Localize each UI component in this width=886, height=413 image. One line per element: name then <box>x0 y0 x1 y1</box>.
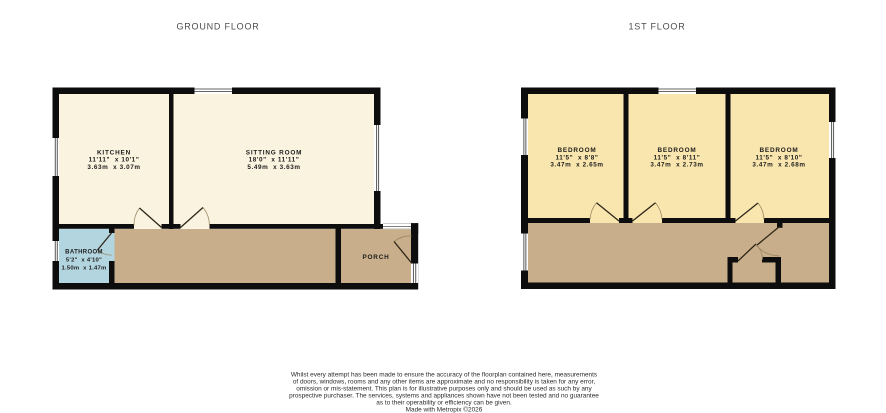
svg-text:BEDROOM: BEDROOM <box>760 147 799 154</box>
svg-text:BEDROOM: BEDROOM <box>558 147 597 154</box>
svg-text:omission or mis-statement. Thi: omission or mis-statement. This plan is … <box>296 385 592 392</box>
svg-text:18'0" x 11'11": 18'0" x 11'11" <box>249 157 300 164</box>
svg-text:Made with Metropix ©2026: Made with Metropix ©2026 <box>406 405 483 413</box>
svg-text:3.47m x 2.68m: 3.47m x 2.68m <box>752 162 805 169</box>
svg-text:BATHROOM: BATHROOM <box>65 249 103 255</box>
svg-text:BEDROOM: BEDROOM <box>658 147 697 154</box>
svg-text:SITTING ROOM: SITTING ROOM <box>246 150 302 157</box>
svg-text:11'11" x 10'1": 11'11" x 10'1" <box>89 157 140 164</box>
svg-text:Whilst every attempt has been: Whilst every attempt has been made to en… <box>291 371 597 378</box>
svg-text:GROUND FLOOR: GROUND FLOOR <box>176 22 259 32</box>
svg-text:11'5" x 8'11": 11'5" x 8'11" <box>654 154 701 161</box>
svg-text:prospective purchaser. The ser: prospective purchaser. The services, sys… <box>289 393 599 400</box>
svg-text:11'5" x 8'10": 11'5" x 8'10" <box>755 154 802 161</box>
svg-text:KITCHEN: KITCHEN <box>97 150 131 157</box>
svg-text:3.63m x 3.07m: 3.63m x 3.07m <box>87 164 140 171</box>
svg-text:1ST FLOOR: 1ST FLOOR <box>628 22 685 32</box>
svg-text:1.50m x 1.47m: 1.50m x 1.47m <box>61 266 106 272</box>
svg-text:5'2" x 4'10": 5'2" x 4'10" <box>66 257 102 263</box>
svg-text:3.47m x 2.65m: 3.47m x 2.65m <box>550 162 603 169</box>
svg-text:5.49m x 3.63m: 5.49m x 3.63m <box>247 164 300 171</box>
svg-text:11'5" x 8'8": 11'5" x 8'8" <box>556 154 599 161</box>
svg-text:of doors, windows, rooms and a: of doors, windows, rooms and any other i… <box>293 378 596 385</box>
svg-text:3.47m x 2.73m: 3.47m x 2.73m <box>650 162 703 169</box>
svg-text:PORCH: PORCH <box>362 254 389 261</box>
